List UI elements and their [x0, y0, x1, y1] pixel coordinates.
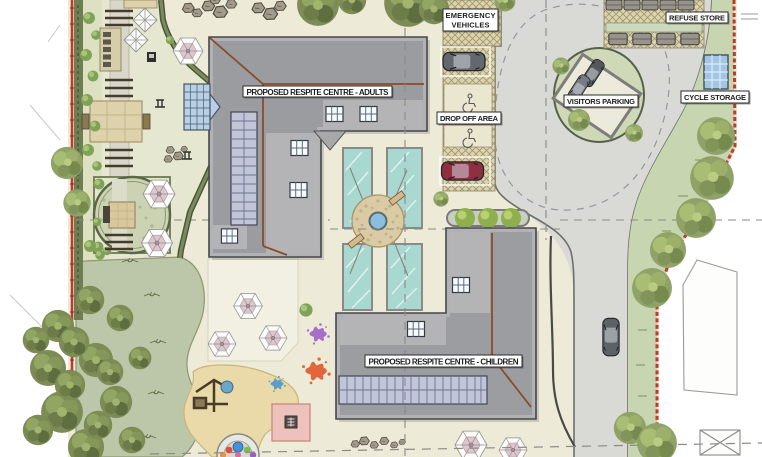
svg-text:VEHICLES: VEHICLES — [452, 21, 490, 30]
svg-text:CYCLE STORAGE: CYCLE STORAGE — [684, 93, 746, 102]
svg-text:REFUSE STORE: REFUSE STORE — [669, 14, 725, 23]
svg-text:PROPOSED RESPITE CENTRE - ADUL: PROPOSED RESPITE CENTRE - ADULTS — [247, 88, 390, 97]
svg-text:PROPOSED RESPITE CENTRE - CHIL: PROPOSED RESPITE CENTRE - CHILDREN — [369, 357, 519, 366]
svg-text:VISITORS PARKING: VISITORS PARKING — [567, 97, 635, 106]
svg-text:DROP OFF AREA: DROP OFF AREA — [440, 114, 499, 123]
svg-text:EMERGENCY: EMERGENCY — [446, 11, 496, 20]
